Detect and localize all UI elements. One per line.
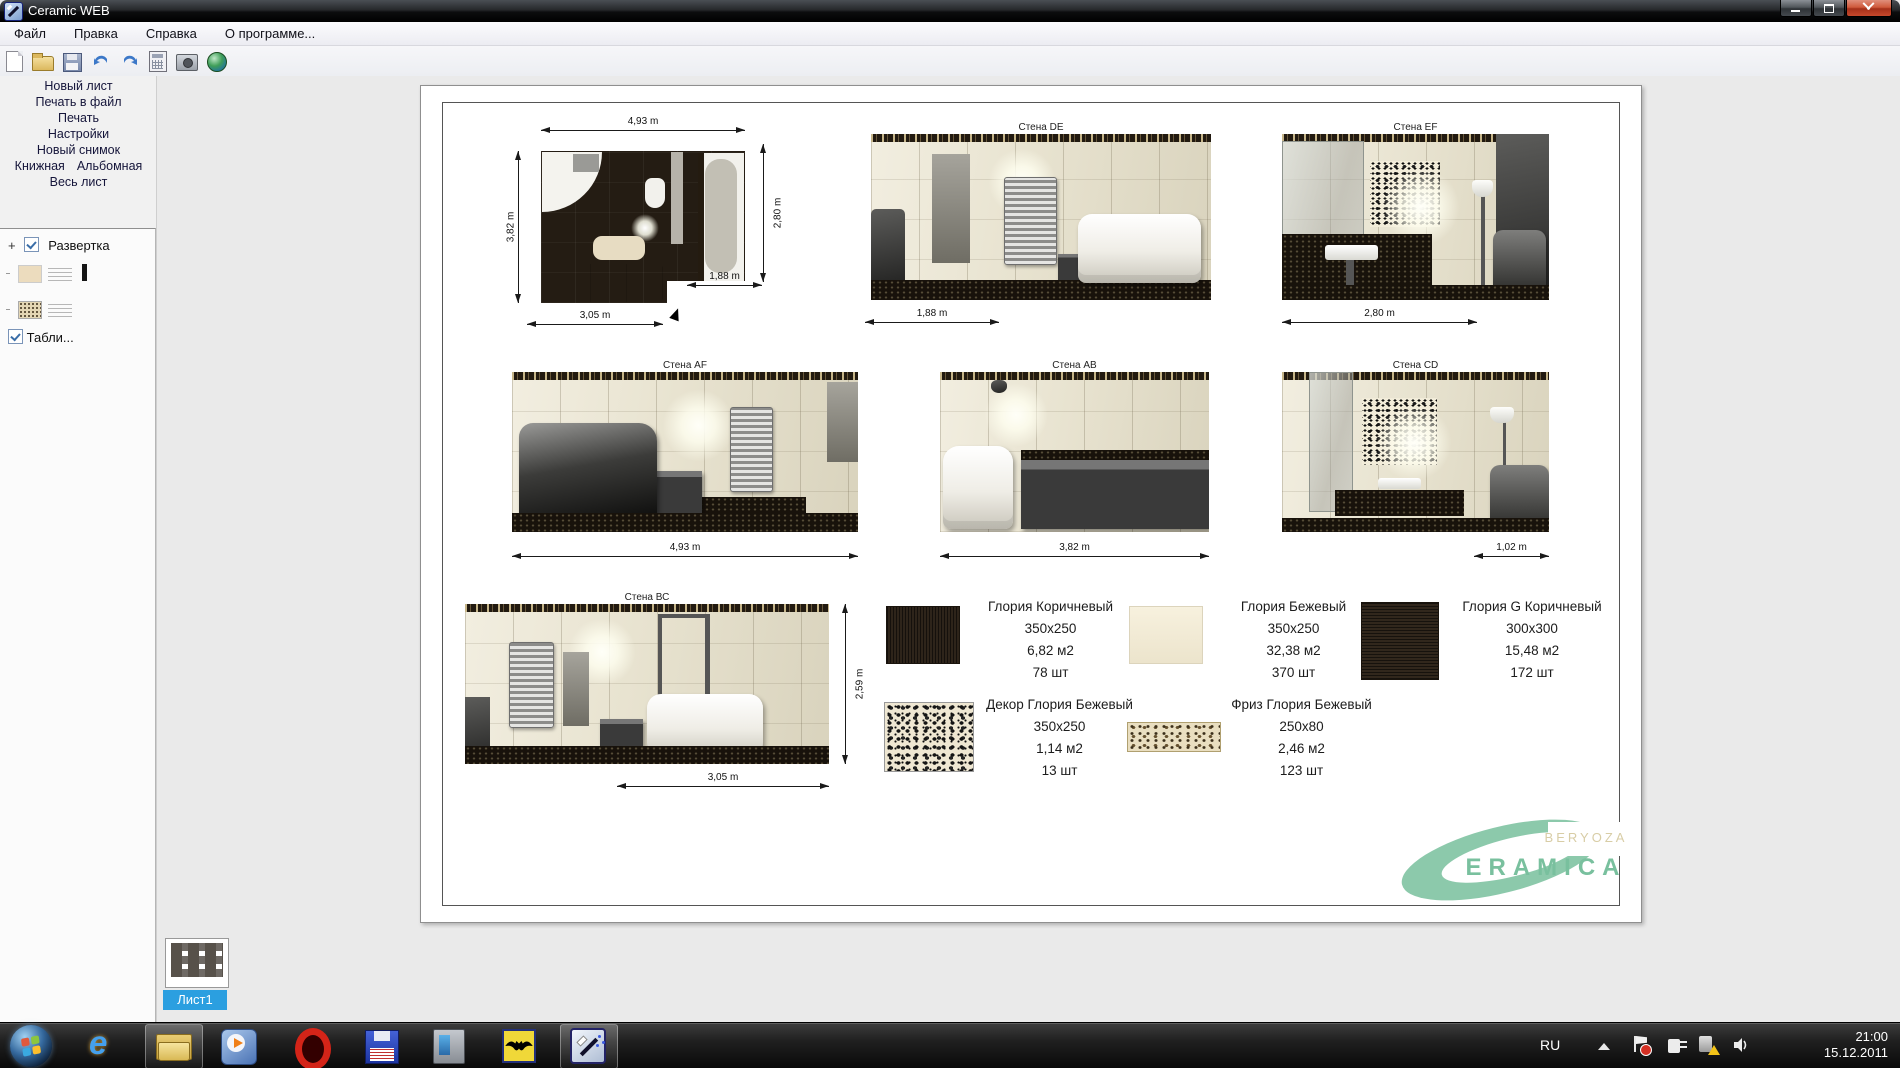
language-indicator[interactable]: RU xyxy=(1540,1037,1560,1053)
plan-dim-right: 2,80 m xyxy=(763,144,764,282)
legend-item-2: Глория Бежевый350x250 32,38 м2370 шт xyxy=(1206,596,1381,684)
beryoza-ceramica-logo: BERYOZA ERAMICA xyxy=(1396,812,1631,902)
layers-tree-panel: + Развертка Табли... xyxy=(0,228,156,1022)
power-icon[interactable] xyxy=(1666,1037,1688,1055)
wall-ab-elevation xyxy=(940,372,1209,532)
floppy-save-icon[interactable] xyxy=(361,1026,401,1066)
media-player-icon[interactable] xyxy=(218,1026,258,1066)
plan-dim-left: 3,82 m xyxy=(518,151,519,303)
plan-dim-inner: 1,88 m xyxy=(687,285,762,286)
menu-about[interactable]: О программе... xyxy=(225,26,315,41)
table-checkbox[interactable] xyxy=(8,329,23,344)
save-icon[interactable] xyxy=(63,53,82,72)
wall-de-dim: 1,88 m xyxy=(865,322,999,323)
minimize-button[interactable] xyxy=(1780,0,1812,17)
legend-item-4: Декор Глория Бежевый350x250 1,14 м213 шт xyxy=(972,694,1147,782)
wall-cd-elevation xyxy=(1282,372,1549,532)
legend-item-1: Глория Коричневый350x250 6,82 м278 шт xyxy=(963,596,1138,684)
action-new-snapshot[interactable]: Новый снимок xyxy=(0,142,157,158)
tile-thumb-decor[interactable] xyxy=(18,301,42,319)
tree-node-razvertka[interactable]: + Развертка xyxy=(8,237,110,253)
close-button[interactable] xyxy=(1846,0,1892,17)
open-file-icon[interactable] xyxy=(32,56,54,71)
wall-ef-title: Стена EF xyxy=(1282,122,1549,133)
new-document-icon[interactable] xyxy=(6,51,23,72)
swatch-frieze-beige xyxy=(1127,722,1221,752)
sheet-tab[interactable]: Лист1 xyxy=(163,990,227,1010)
swatch-gloria-brown xyxy=(886,606,960,664)
app-window: Ceramic WEB Файл Правка Справка О програ… xyxy=(0,0,1900,1068)
system-tray: RU 21:00 15.12.2011 xyxy=(1540,1023,1900,1068)
table-checkbox-row[interactable]: Табли... xyxy=(8,329,74,345)
plan-dim-bottom: 3,05 m xyxy=(527,324,663,325)
sidebar: Новый лист Печать в файл Печать Настройк… xyxy=(0,76,157,1022)
opera-icon[interactable] xyxy=(290,1026,330,1066)
computer-icon[interactable] xyxy=(428,1026,468,1066)
bath-shape xyxy=(698,153,744,281)
action-landscape[interactable]: Альбомная xyxy=(77,158,142,174)
wall-af-dim: 4,93 m xyxy=(512,556,858,557)
table-shape xyxy=(593,236,645,260)
door-shape xyxy=(671,152,683,244)
windows-explorer-icon[interactable] xyxy=(153,1026,193,1066)
action-whole-sheet[interactable]: Весь лист xyxy=(0,174,157,190)
internet-explorer-icon[interactable]: e xyxy=(83,1026,123,1066)
shower-head-shape xyxy=(573,154,599,172)
volume-icon[interactable] xyxy=(1732,1036,1750,1059)
globe-icon[interactable] xyxy=(207,52,227,72)
swatch-decor-beige xyxy=(884,702,974,772)
menu-help[interactable]: Справка xyxy=(146,26,197,41)
legend-item-3: Глория G Коричневый300x300 15,48 м2172 ш… xyxy=(1442,596,1622,684)
wall-bc-height-dim: 2,59 m xyxy=(845,604,846,764)
plan-dim-top: 4,93 m xyxy=(541,130,745,131)
snapshot-icon[interactable] xyxy=(176,54,198,71)
print-preview-canvas: 4,93 m 3,82 m 2,80 m 1,88 m 3,05 m Стена… xyxy=(157,76,1900,1022)
undo-icon[interactable] xyxy=(91,51,111,71)
tile-thumb-info xyxy=(48,302,72,317)
logo-line2: ERAMICA xyxy=(1466,854,1627,881)
wall-ef-elevation xyxy=(1282,134,1549,300)
tree-dash xyxy=(6,273,10,274)
legend-item-5: Фриз Глория Бежевый250x80 2,46 м2123 шт xyxy=(1219,694,1384,782)
action-print[interactable]: Печать xyxy=(0,110,157,126)
ceramicweb-icon[interactable] xyxy=(568,1026,608,1066)
clock[interactable]: 21:00 15.12.2011 xyxy=(1770,1029,1900,1061)
tile-thumb-beige[interactable] xyxy=(18,265,42,283)
logo-line1: BERYOZA xyxy=(1545,830,1628,845)
table-label: Табли... xyxy=(27,330,74,345)
hidden-icons-arrow[interactable] xyxy=(1598,1043,1610,1050)
toilet-shape xyxy=(645,178,665,208)
tree-expand-icon[interactable]: + xyxy=(8,238,20,253)
swatch-gloria-beige xyxy=(1129,606,1203,664)
bath-strip-shape xyxy=(698,153,704,281)
menu-edit[interactable]: Правка xyxy=(74,26,118,41)
window-title: Ceramic WEB xyxy=(28,3,110,18)
wall-ef-dim: 2,80 m xyxy=(1282,322,1477,323)
action-portrait[interactable]: Книжная xyxy=(15,158,65,174)
tile-thumb-bar xyxy=(82,264,87,281)
print-page: 4,93 m 3,82 m 2,80 m 1,88 m 3,05 m Стена… xyxy=(420,85,1642,923)
calculator-icon[interactable] xyxy=(149,51,167,72)
wall-bc-dim: 3,05 m xyxy=(617,786,829,787)
wall-cd-title: Стена CD xyxy=(1282,360,1549,371)
taskbar: e xyxy=(0,1022,1900,1068)
menu-bar: Файл Правка Справка О программе... xyxy=(0,22,1900,46)
app-icon xyxy=(4,2,23,21)
swatch-gloria-g-brown xyxy=(1361,602,1439,680)
wall-bc-title: Стена ВС xyxy=(465,592,829,603)
clock-time: 21:00 xyxy=(1770,1029,1888,1045)
tile-thumb-info xyxy=(48,266,72,281)
sheet-thumbnail[interactable] xyxy=(165,938,229,988)
action-new-sheet[interactable]: Новый лист xyxy=(0,78,157,94)
action-center-icon[interactable] xyxy=(1632,1035,1650,1055)
clock-date: 15.12.2011 xyxy=(1770,1045,1888,1061)
redo-icon[interactable] xyxy=(120,51,140,71)
wall-af-elevation xyxy=(512,372,858,532)
thebat-icon[interactable] xyxy=(499,1026,539,1066)
title-bar: Ceramic WEB xyxy=(0,0,1900,22)
wall-cd-dim: 1,02 m xyxy=(1474,556,1549,557)
wall-de-elevation xyxy=(871,134,1211,300)
toolbar: План помещения Укладка плитки Установка … xyxy=(0,46,1900,76)
device-warning-icon[interactable] xyxy=(1698,1035,1720,1055)
wall-ab-title: Стена АВ xyxy=(940,360,1209,371)
wall-af-title: Стена AF xyxy=(512,360,858,371)
razvertka-checkbox[interactable] xyxy=(24,237,39,252)
maximize-button[interactable] xyxy=(1813,0,1845,17)
tree-dash xyxy=(6,309,10,310)
tree-node-label: Развертка xyxy=(48,238,109,253)
start-button[interactable] xyxy=(10,1025,52,1067)
action-print-to-file[interactable]: Печать в файл xyxy=(0,94,157,110)
menu-file[interactable]: Файл xyxy=(14,26,46,41)
sofa-shape xyxy=(555,264,667,302)
wall-bc-elevation xyxy=(465,604,829,764)
action-settings[interactable]: Настройки xyxy=(0,126,157,142)
wall-de-title: Стена DE xyxy=(871,122,1211,133)
wall-ab-dim: 3,82 m xyxy=(940,556,1209,557)
